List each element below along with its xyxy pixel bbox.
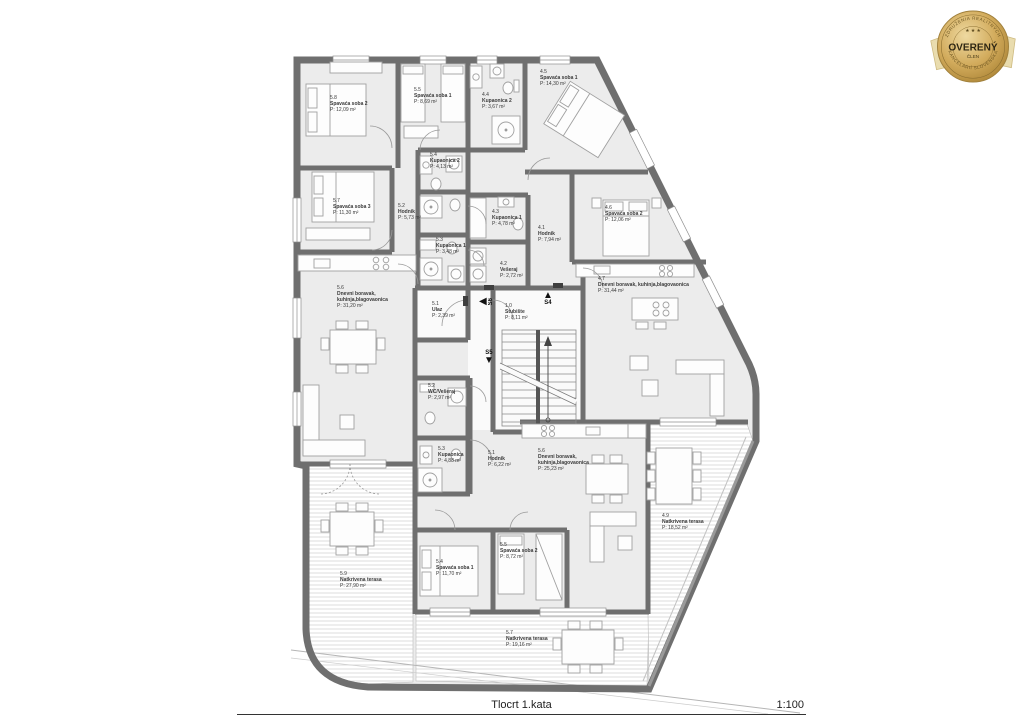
room-area: P: 11,30 m² — [333, 211, 371, 217]
drawing-title: Tlocrt 1.kata — [237, 699, 806, 711]
room-label-20: 5.4Spavaća soba 1P: 11,70 m² — [436, 560, 474, 578]
room-label-2: 4.4Kupaonica 2P: 3,67 m² — [482, 93, 512, 111]
floorplan-page: 5.8Spavaća soba 2P: 12,09 m²5.5Spavaća s… — [0, 0, 1023, 726]
room-label-24: 5.7Natkrivena terasaP: 19,16 m² — [506, 631, 548, 649]
room-label-3: 4.5Spavaća soba 1P: 14,30 m² — [540, 70, 578, 88]
badge-subtitle: ČLEN — [967, 53, 979, 59]
room-label-9: 4.6Spavaća soba 2P: 12,06 m² — [605, 206, 643, 224]
section-arrow-S6: ◀S6 — [479, 297, 494, 306]
room-label-22: 5.9Natkrivena terasaP: 27,90 m² — [340, 572, 382, 590]
room-area: P: 3,48 m² — [436, 250, 466, 256]
room-area: P: 4,78 m² — [492, 222, 522, 228]
room-area: P: 4,88 m² — [438, 459, 464, 465]
badge-title: OVERENÝ — [948, 40, 998, 53]
badge-seal: ZDRUŽENIA REALITNÝCH KANCELÁRIÍ SLOVENSK… — [937, 11, 1008, 82]
room-area: P: 25,23 m² — [538, 467, 589, 473]
room-area: P: 11,70 m² — [436, 572, 474, 578]
room-label-16: 5.2WC/VešerajP: 2,97 m² — [428, 384, 455, 402]
titlebar: Tlocrt 1.kata 1:100 — [237, 698, 806, 715]
room-area: P: 2,97 m² — [428, 396, 455, 402]
room-area: P: 7,94 m² — [538, 238, 561, 244]
room-label-10: 5.3Kupaonica 1P: 3,48 m² — [436, 238, 466, 256]
room-label-15: 1.0StubišteP: 8,11 m² — [505, 304, 528, 322]
room-label-23: 4.9Natkrivena terasaP: 18,52 m² — [662, 514, 704, 532]
room-area: P: 12,06 m² — [605, 218, 643, 224]
room-area: P: 4,13 m² — [430, 165, 460, 171]
badge-stars: ★ ★ ★ — [965, 28, 981, 34]
room-label-7: 4.3Kupaonica 1P: 4,78 m² — [492, 210, 522, 228]
room-label-8: 4.1HodnikP: 7,94 m² — [538, 226, 561, 244]
room-label-11: 4.2VešerajP: 2,72 m² — [500, 262, 523, 280]
room-area: P: 14,30 m² — [540, 82, 578, 88]
arrow-down-icon: ▼ — [484, 356, 494, 365]
room-area: P: 18,52 m² — [662, 526, 704, 532]
room-area: P: 2,39 m² — [432, 314, 455, 320]
room-label-17: 5.3KupaonicaP: 4,88 m² — [438, 447, 464, 465]
room-area: P: 31,20 m² — [337, 304, 388, 310]
room-label-1: 5.5Spavaća soba 1P: 8,69 m² — [414, 88, 452, 106]
drawing-scale: 1:100 — [776, 699, 804, 711]
section-arrow-S5: S5▼ — [484, 350, 494, 365]
room-area: P: 6,22 m² — [488, 463, 511, 469]
arrow-label: S6 — [488, 298, 494, 305]
room-label-12: 4.7Dnevni boravak, kuhinja,blagovaonicaP… — [598, 277, 689, 295]
room-label-4: 5.4Kupaonica 2P: 4,13 m² — [430, 153, 460, 171]
room-area: P: 8,69 m² — [414, 100, 452, 106]
room-label-13: 5.6Dnevni boravak, kuhinja,blagovaonicaP… — [337, 286, 388, 310]
room-label-5: 5.7Spavaća soba 3P: 11,30 m² — [333, 199, 371, 217]
room-name: Dnevni boravak, kuhinja,blagovaonica — [538, 455, 589, 467]
room-label-6: 5.2HodnikP: 5,73 m² — [398, 204, 421, 222]
room-area: P: 2,72 m² — [500, 274, 523, 280]
room-area: P: 8,11 m² — [505, 316, 528, 322]
room-area: P: 12,09 m² — [330, 108, 368, 114]
room-area: P: 3,67 m² — [482, 105, 512, 111]
room-area: P: 19,16 m² — [506, 643, 548, 649]
room-area: P: 5,73 m² — [398, 216, 421, 222]
room-area: P: 8,72 m² — [500, 555, 538, 561]
arrow-label: S4 — [544, 300, 551, 306]
arrow-up-icon: ▲ — [543, 291, 553, 300]
room-label-0: 5.8Spavaća soba 2P: 12,09 m² — [330, 96, 368, 114]
verified-member-badge: ZDRUŽENIA REALITNÝCH KANCELÁRIÍ SLOVENSK… — [925, 2, 1021, 94]
room-area: P: 27,90 m² — [340, 584, 382, 590]
room-label-21: 5.5Spavaća soba 2P: 8,72 m² — [500, 543, 538, 561]
room-label-19: 5.6Dnevni boravak, kuhinja,blagovaonicaP… — [538, 449, 589, 473]
section-arrow-S4: ▲S4 — [543, 291, 553, 306]
room-label-14: 5.1UlazP: 2,39 m² — [432, 302, 455, 320]
room-label-18: 5.1HodnikP: 6,22 m² — [488, 451, 511, 469]
arrow-left-icon: ◀ — [479, 297, 487, 306]
room-area: P: 31,44 m² — [598, 289, 689, 295]
room-name: Dnevni boravak, kuhinja,blagovaonica — [337, 292, 388, 304]
